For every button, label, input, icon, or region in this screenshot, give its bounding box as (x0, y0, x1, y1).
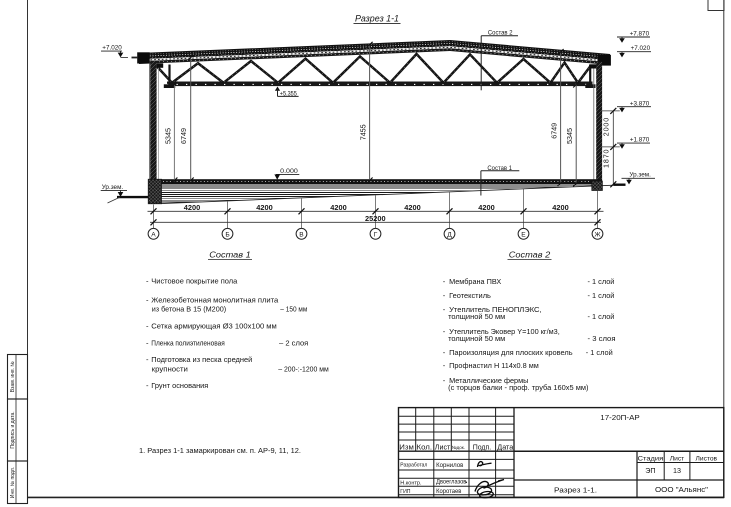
svg-text:- 1 слой: - 1 слой (588, 291, 615, 300)
svg-text:Двоеглазов: Двоеглазов (436, 480, 466, 486)
svg-text:– 150 мм: – 150 мм (280, 305, 307, 314)
svg-text:+7.870: +7.870 (630, 30, 650, 37)
svg-text:5345: 5345 (565, 128, 574, 144)
svg-text:-: - (146, 322, 149, 331)
svg-text:4200: 4200 (404, 203, 420, 212)
svg-text:13: 13 (673, 466, 681, 475)
svg-text:Лист: Лист (435, 443, 451, 452)
svg-text:крупности: крупности (152, 364, 188, 373)
svg-text:Стадия: Стадия (638, 456, 664, 463)
svg-text:Геотекстиль: Геотекстиль (449, 291, 491, 300)
svg-text:Ур.зем.: Ур.зем. (102, 184, 124, 191)
svg-text:(с торцов балки - проф. труба: (с торцов балки - проф. труба 160х5 мм) (448, 383, 589, 392)
svg-text:№док.: №док. (452, 445, 465, 450)
svg-text:Дата: Дата (497, 443, 513, 452)
svg-text:Пленка полиэтиленовая: Пленка полиэтиленовая (151, 339, 225, 348)
svg-text:-: - (443, 277, 446, 286)
svg-text:В: В (299, 231, 304, 238)
svg-text:- 3 слоя: - 3 слоя (588, 334, 616, 343)
svg-text:Чистовое покрытие пола: Чистовое покрытие пола (151, 277, 238, 286)
svg-text:25200: 25200 (365, 214, 386, 223)
svg-text:Состав 1: Состав 1 (209, 251, 250, 260)
svg-text:А: А (151, 231, 156, 238)
svg-text:– 2 слоя: – 2 слоя (279, 339, 308, 348)
svg-text:Инв. № подл.: Инв. № подл. (10, 467, 16, 498)
svg-text:7455: 7455 (358, 124, 367, 140)
svg-text:- 1 слой: - 1 слой (588, 312, 615, 321)
svg-text:4200: 4200 (330, 203, 346, 212)
svg-text:4200: 4200 (552, 203, 568, 212)
svg-text:6749: 6749 (179, 128, 188, 144)
svg-text:Пароизоляция для плоских крове: Пароизоляция для плоских кровель (449, 348, 573, 357)
svg-text:+7.020: +7.020 (631, 45, 651, 52)
svg-text:1. Разрез 1-1 замаркирован см.: 1. Разрез 1-1 замаркирован см. п. АР-9, … (139, 448, 301, 455)
svg-text:-: - (443, 376, 446, 385)
svg-text:Подготовка из песка средней: Подготовка из песка средней (151, 355, 252, 364)
svg-text:-: - (443, 305, 446, 314)
svg-text:-: - (443, 327, 446, 336)
svg-text:- 1 слой: - 1 слой (586, 348, 613, 357)
svg-text:Н.контр.: Н.контр. (400, 480, 421, 486)
svg-text:-: - (146, 277, 149, 286)
svg-text:Ж: Ж (594, 231, 600, 238)
svg-text:4200: 4200 (478, 203, 494, 212)
svg-text:Взам. инв. №: Взам. инв. № (10, 361, 16, 392)
svg-text:4200: 4200 (256, 203, 272, 212)
svg-text:Корнилов: Корнилов (436, 463, 463, 469)
svg-text:+7.020: +7.020 (102, 45, 122, 52)
svg-text:толщиной 50 мм: толщиной 50 мм (448, 334, 505, 343)
svg-text:- 1 слой: - 1 слой (588, 277, 615, 286)
svg-text:17-20П-АР: 17-20П-АР (600, 413, 640, 422)
svg-text:Г: Г (374, 231, 378, 238)
svg-text:-: - (443, 361, 446, 370)
svg-text:+5.355: +5.355 (280, 91, 298, 97)
svg-text:Разрез 1-1.: Разрез 1-1. (554, 485, 597, 494)
svg-text:Е: Е (521, 231, 526, 238)
svg-text:Разработал: Разработал (400, 463, 427, 469)
svg-text:Подпись и дата.: Подпись и дата. (10, 411, 16, 448)
svg-text:– 200-:-1200 мм: – 200-:-1200 мм (278, 364, 329, 373)
svg-text:ООО "Альянс": ООО "Альянс" (655, 485, 708, 494)
svg-text:6749: 6749 (549, 123, 558, 139)
svg-text:Д: Д (447, 231, 452, 238)
svg-text:+1.870: +1.870 (630, 137, 650, 144)
svg-text:Кол.: Кол. (417, 443, 433, 452)
svg-text:5345: 5345 (163, 128, 172, 144)
svg-text:Изм: Изм (399, 443, 414, 452)
svg-text:2000: 2000 (602, 118, 611, 137)
svg-text:-: - (146, 295, 149, 304)
svg-text:толщиной 50 мм: толщиной 50 мм (448, 312, 505, 321)
svg-text:из бетона В 15 (М200): из бетона В 15 (М200) (152, 305, 227, 314)
svg-text:Грунт основания: Грунт основания (151, 381, 208, 390)
svg-text:ЭП: ЭП (645, 466, 655, 475)
svg-text:Железобетонная монолитная пли: Железобетонная монолитная плита (151, 295, 279, 304)
svg-text:Ур.зем.: Ур.зем. (629, 171, 651, 178)
svg-text:-: - (443, 291, 446, 300)
svg-text:Мембрана ПВХ: Мембрана ПВХ (449, 277, 501, 286)
svg-text:-: - (146, 355, 149, 364)
svg-text:Лист: Лист (670, 456, 685, 463)
svg-text:4200: 4200 (184, 203, 200, 212)
svg-text:ГИП: ГИП (400, 489, 410, 495)
svg-text:Состав 2: Состав 2 (509, 251, 551, 260)
svg-text:1870: 1870 (602, 149, 611, 168)
svg-text:Б: Б (225, 231, 229, 238)
svg-text:-: - (146, 339, 149, 348)
svg-text:-: - (146, 381, 149, 390)
svg-text:Профнастил Н 114х0.8 мм: Профнастил Н 114х0.8 мм (449, 361, 539, 370)
svg-text:Листов: Листов (696, 456, 718, 463)
svg-text:Сетка армирующая Ø3 100х100 мм: Сетка армирующая Ø3 100х100 мм (151, 322, 277, 331)
svg-text:Коротаев: Коротаев (436, 489, 461, 495)
svg-text:Подп.: Подп. (473, 443, 492, 452)
svg-text:-: - (443, 348, 446, 357)
svg-text:Разрез 1-1: Разрез 1-1 (355, 13, 399, 23)
